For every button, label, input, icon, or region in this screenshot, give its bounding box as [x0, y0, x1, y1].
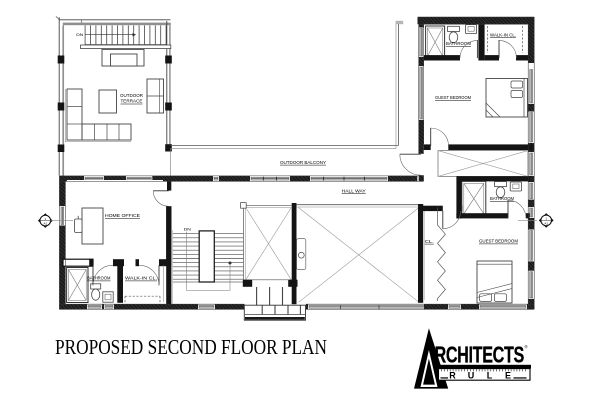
svg-text:A1: A1 [43, 222, 47, 226]
svg-text:R: R [449, 370, 456, 380]
svg-text:BATHROOM: BATHROOM [87, 276, 111, 281]
svg-text:TERRACE: TERRACE [121, 99, 143, 104]
svg-text:HALL WAY: HALL WAY [342, 188, 366, 193]
svg-text:OUTDOOR: OUTDOOR [120, 93, 143, 98]
svg-text:E: E [505, 370, 511, 380]
svg-text:A1: A1 [544, 221, 548, 225]
svg-text:L: L [487, 370, 493, 380]
svg-text:RCHITECTS: RCHITECTS [435, 342, 525, 368]
svg-text:U: U [468, 370, 475, 380]
svg-text:PROPOSED SECOND FLOOR PLAN: PROPOSED SECOND FLOOR PLAN [55, 335, 327, 359]
svg-text:GUEST BEDROOM: GUEST BEDROOM [479, 239, 519, 244]
svg-text:CL.: CL. [425, 239, 434, 244]
svg-text:DN: DN [184, 227, 191, 232]
svg-text:HOME OFFICE: HOME OFFICE [105, 213, 140, 218]
svg-text:DN: DN [76, 32, 83, 37]
svg-text:GUEST BEDROOM: GUEST BEDROOM [435, 95, 471, 100]
svg-text:WALK-IN CL.: WALK-IN CL. [490, 32, 516, 37]
svg-text:OUTDOOR BALCONY: OUTDOOR BALCONY [280, 160, 326, 165]
svg-text:WALK-IN CL.: WALK-IN CL. [125, 276, 157, 281]
